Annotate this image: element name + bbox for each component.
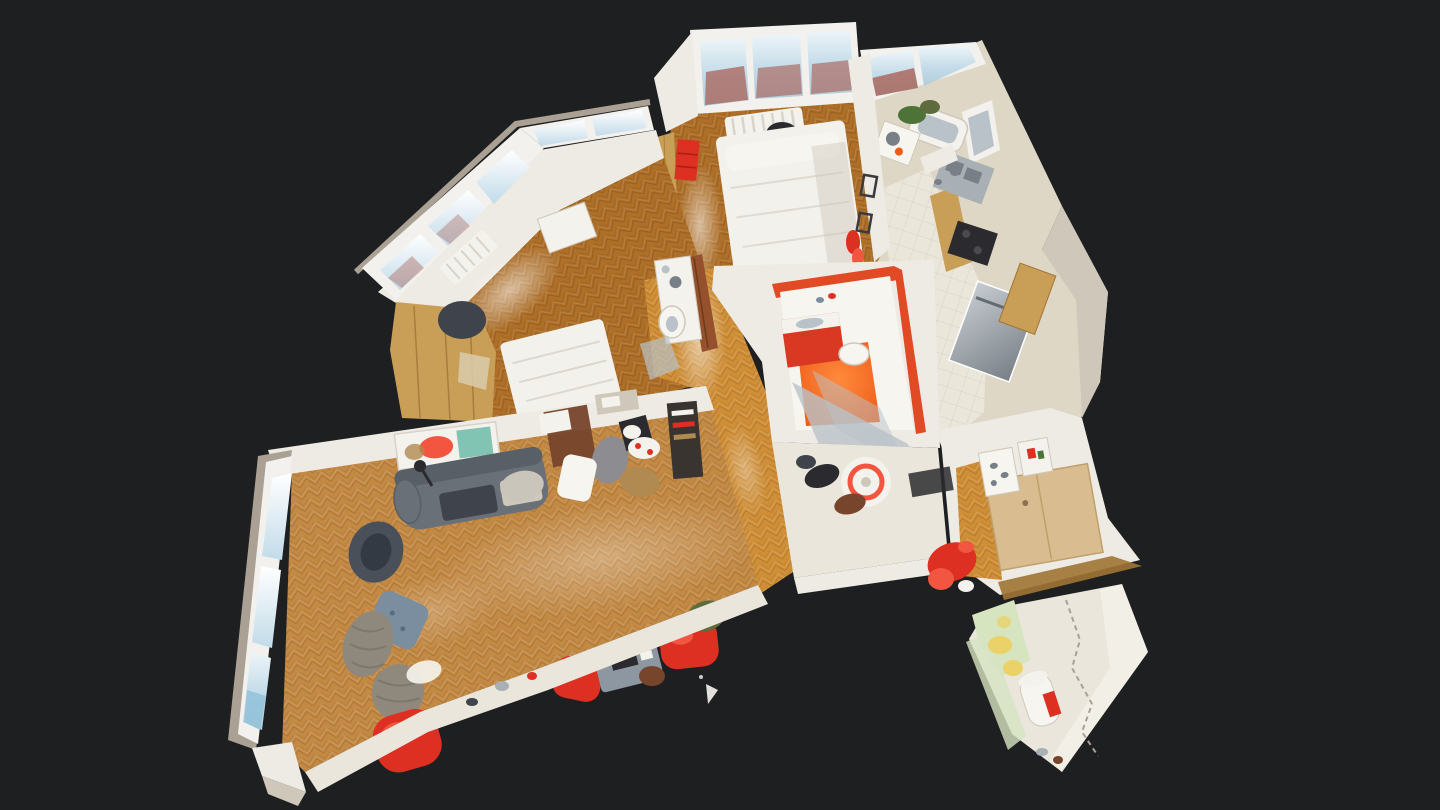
window-buildings: [811, 60, 853, 94]
yellow-item: [1003, 660, 1023, 676]
dark-clothes: [796, 455, 816, 469]
window-buildings: [705, 66, 748, 105]
shelf-with-items: [978, 447, 1019, 496]
red-vanity: [781, 312, 845, 368]
desk-chair: [639, 666, 665, 686]
small-item: [527, 672, 537, 680]
small-item: [466, 698, 478, 706]
dollhouse-render: [0, 0, 1440, 810]
laundry-red: [635, 443, 641, 449]
first-aid-cabinet: [1017, 437, 1052, 476]
small-item: [495, 681, 509, 691]
toilet: [839, 343, 869, 365]
kitchen-pot: [934, 179, 942, 185]
chair-seat: [623, 425, 641, 439]
rug-center: [861, 477, 871, 487]
laundry-pile: [628, 437, 660, 459]
toiletry-item: [816, 297, 824, 303]
plant: [920, 100, 940, 114]
window-buildings: [756, 64, 802, 98]
yellow-item: [988, 636, 1012, 654]
small-item: [1036, 748, 1048, 756]
matterport-3d-viewport[interactable]: [0, 0, 1440, 810]
toilet-bowl: [666, 316, 678, 332]
red-drawers: [674, 139, 699, 181]
toiletry-item: [828, 293, 836, 299]
kitchen-pot: [950, 168, 960, 176]
laundry-red: [647, 449, 653, 455]
small-item: [1053, 756, 1063, 764]
dark-chair: [438, 301, 486, 339]
yellow-item: [997, 616, 1011, 628]
